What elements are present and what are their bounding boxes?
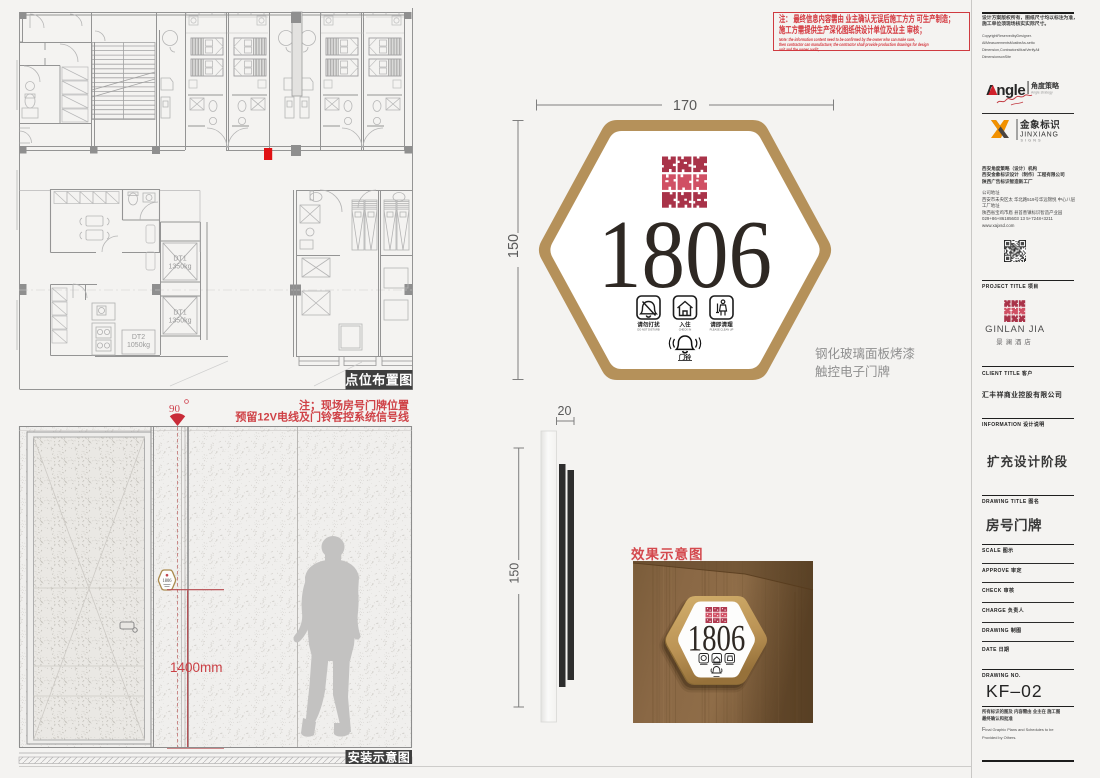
svg-text:1350kg: 1350kg [169, 264, 192, 271]
svg-text:90: 90 [169, 403, 181, 415]
svg-text:PLEASE CLEAN UP: PLEASE CLEAN UP [710, 328, 734, 332]
svg-text:预留12V电线及门铃客控系统信号线: 预留12V电线及门铃客控系统信号线 [235, 410, 409, 424]
svg-text:170: 170 [673, 98, 697, 114]
svg-text:CHECK IN: CHECK IN [679, 328, 692, 332]
svg-text:DT2: DT2 [132, 334, 145, 341]
svg-text:SIGNS: SIGNS [1021, 139, 1043, 143]
svg-text:注；现场房号门牌位置: 注；现场房号门牌位置 [299, 398, 409, 412]
svg-text:1806: 1806 [598, 201, 772, 308]
svg-text:请勿打扰: 请勿打扰 [637, 321, 660, 329]
svg-text:20: 20 [558, 404, 572, 418]
svg-text:150: 150 [506, 234, 522, 258]
svg-text:1050kg: 1050kg [127, 342, 150, 349]
svg-text:角度策略: 角度策略 [1031, 81, 1060, 90]
svg-text:安装示意图: 安装示意图 [348, 750, 411, 765]
svg-text:DT1: DT1 [173, 310, 186, 317]
svg-text:DT1: DT1 [173, 256, 186, 263]
svg-text:请即清理: 请即清理 [710, 321, 733, 329]
svg-text:1400mm: 1400mm [170, 660, 223, 675]
svg-text:点位布置图: 点位布置图 [345, 373, 413, 388]
svg-text:1806: 1806 [163, 579, 172, 584]
svg-text:150: 150 [508, 563, 522, 584]
svg-text:1350kg: 1350kg [169, 318, 192, 325]
svg-text:DO NOT DISTURB: DO NOT DISTURB [637, 328, 659, 332]
svg-text:JINXIANG: JINXIANG [1020, 132, 1059, 139]
svg-text:金象标识: 金象标识 [1019, 119, 1060, 131]
svg-text:Angle strategy: Angle strategy [1031, 91, 1053, 95]
svg-text:入住: 入住 [678, 321, 691, 329]
